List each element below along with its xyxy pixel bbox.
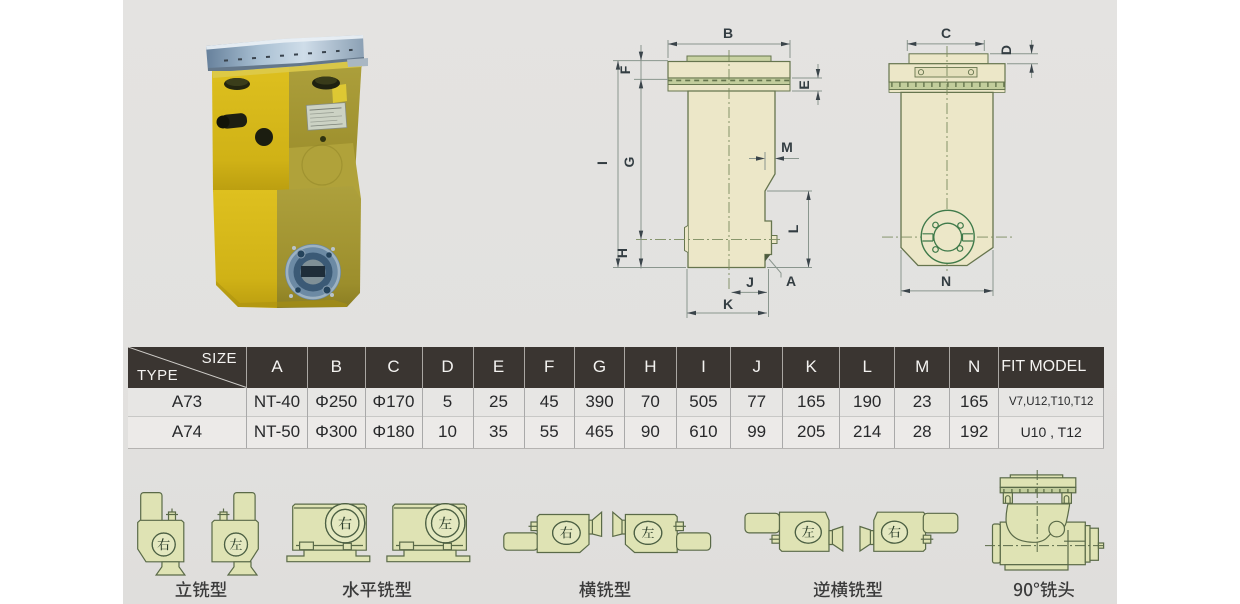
svg-text:N: N [941,273,951,289]
svg-text:C: C [941,25,951,41]
svg-text:G: G [621,156,637,167]
svg-text:E: E [796,80,812,89]
svg-text:J: J [746,274,754,290]
svg-text:D: D [998,45,1014,55]
svg-text:K: K [723,296,733,312]
svg-text:I: I [594,161,610,165]
svg-text:H: H [614,248,630,258]
svg-text:L: L [785,224,801,233]
svg-text:A: A [786,273,796,289]
svg-text:F: F [617,65,633,74]
svg-text:M: M [781,139,793,155]
svg-text:B: B [723,25,733,41]
